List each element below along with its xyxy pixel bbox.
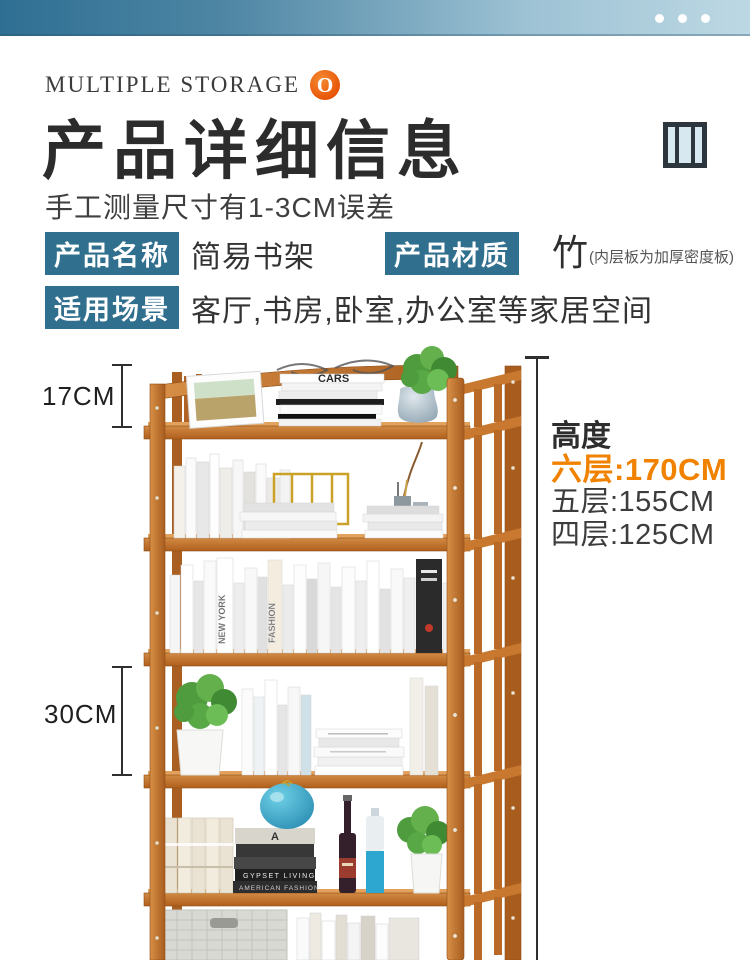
height-option-4: 四层:125CM	[551, 519, 727, 552]
dim-line-17cm-cap-top	[112, 364, 132, 366]
brand-logo-icon: O	[310, 70, 340, 100]
wine-bottle	[339, 795, 356, 893]
magazine-spine-text: NEW YORK	[217, 594, 227, 644]
spec-value-product-name: 简易书架	[191, 232, 315, 275]
page-title: 产品详细信息	[42, 100, 468, 192]
material-value: 竹	[552, 224, 589, 276]
dot-icon	[655, 14, 664, 23]
height-option-6: 六层:170CM	[551, 453, 727, 486]
window-icon	[663, 122, 707, 168]
left-front-post	[150, 384, 165, 960]
blue-vase	[260, 783, 314, 829]
book-spine-text: AMERICAN FASHION	[239, 885, 320, 892]
book-spine-text: GYPSET LIVING	[243, 873, 316, 880]
spec-label-product-name: 产品名称	[45, 232, 179, 275]
plant-shelf5	[397, 806, 450, 893]
dim-label-17cm: 17CM	[42, 381, 115, 412]
measure-note: 手工测量尺寸有1-3CM误差	[45, 186, 395, 226]
spec-label-material: 产品材质	[385, 232, 519, 275]
dim-line-17cm-cap-bottom	[112, 426, 132, 428]
dot-indicators	[655, 14, 710, 23]
height-title: 高度	[551, 420, 727, 453]
brand-text: MULTIPLE STORAGE	[45, 72, 300, 98]
height-panel: 高度 六层:170CM 五层:155CM 四层:125CM	[551, 420, 727, 552]
magazine-spine-text: FASHION	[267, 603, 277, 643]
shelf-5-items: AMERICAN FASHION GYPSET LIVING A	[164, 781, 450, 893]
dim-line-17cm	[121, 366, 123, 426]
spec-value-scenes: 客厅,书房,卧室,办公室等家居空间	[191, 286, 653, 329]
dot-icon	[678, 14, 687, 23]
shelf-3-items: NEW YORK FASHION	[170, 558, 452, 653]
dim-label-30cm: 30CM	[44, 699, 117, 730]
dim-line-30cm-cap-bottom	[112, 774, 132, 776]
book-spine-text: A	[271, 831, 279, 843]
height-option-5: 五层:155CM	[551, 486, 727, 519]
product-detail-page: MULTIPLE STORAGE O 产品详细信息 手工测量尺寸有1-3CM误差…	[0, 0, 750, 960]
dim-line-height-cap-top	[525, 356, 549, 359]
dim-line-height	[536, 358, 538, 960]
bookshelf-product-photo: CARS	[122, 338, 532, 960]
shelf-6-items	[162, 910, 419, 960]
file-boxes	[164, 818, 233, 893]
dim-line-30cm	[121, 668, 123, 774]
spec-label-scenes: 适用场景	[45, 286, 179, 329]
woven-basket	[162, 910, 287, 960]
shelf-1-items: CARS	[186, 346, 457, 428]
window-pane-divider	[691, 127, 695, 163]
material-note: (内层板为加厚密度板)	[589, 246, 734, 267]
dim-line-30cm-cap-top	[112, 666, 132, 668]
shelf-4-items	[174, 674, 438, 775]
top-banner	[0, 0, 750, 36]
right-side-panel	[447, 366, 521, 960]
spec-value-material: 竹 (内层板为加厚密度板)	[552, 228, 734, 271]
shelf-2-items	[174, 442, 443, 538]
plant-shelf4	[174, 674, 237, 775]
window-pane-divider	[675, 127, 679, 163]
dot-icon	[701, 14, 710, 23]
blue-bottle	[366, 808, 384, 893]
dark-book-stack: AMERICAN FASHION GYPSET LIVING A	[233, 828, 320, 893]
brand-row: MULTIPLE STORAGE O	[45, 70, 340, 100]
